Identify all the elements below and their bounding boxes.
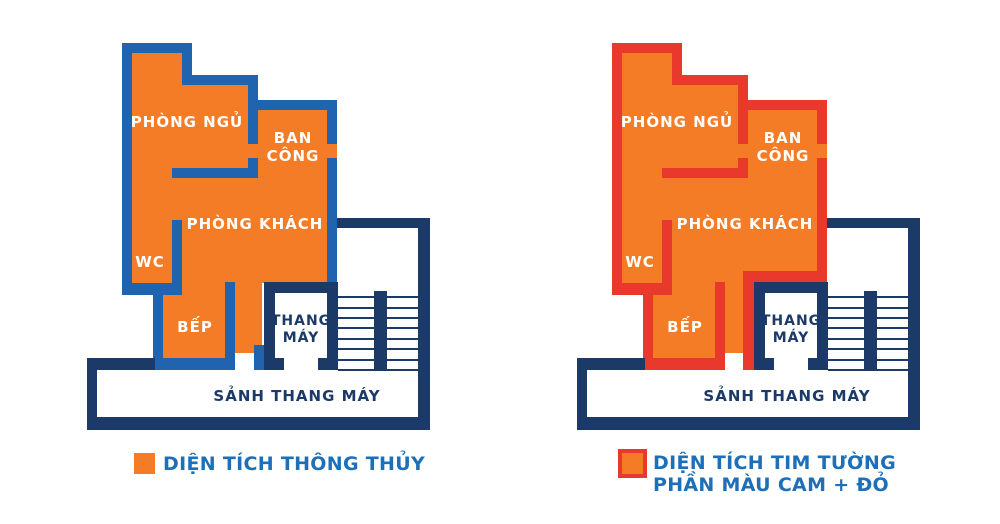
legend-label-net-area: DIỆN TÍCH THÔNG THỦY [163,454,425,474]
legend-swatch-net-area [134,453,155,474]
door-stub-left [254,345,264,370]
floorplan-infographic: PHÒNG NGỦ BAN CÔNG PHÒNG KHÁCH WC BẾP TH… [0,0,1000,524]
legend-label-wall-centerline-line1: DIỆN TÍCH TIM TƯỜNG [653,452,896,474]
floorplan-left [87,43,430,430]
elevator-wrap-side-right [743,271,754,370]
elevator-wrap-top-right [746,271,827,282]
legend-label-wall-centerline-area: DIỆN TÍCH TIM TƯỜNG PHẦN MÀU CAM + ĐỎ [653,452,896,496]
legend-label-wall-centerline-line2: PHẦN MÀU CAM + ĐỎ [653,474,896,496]
floorplan-right [577,43,920,430]
legend-swatch-wall-centerline-area [618,449,647,478]
floorplans-svg [0,0,1000,524]
